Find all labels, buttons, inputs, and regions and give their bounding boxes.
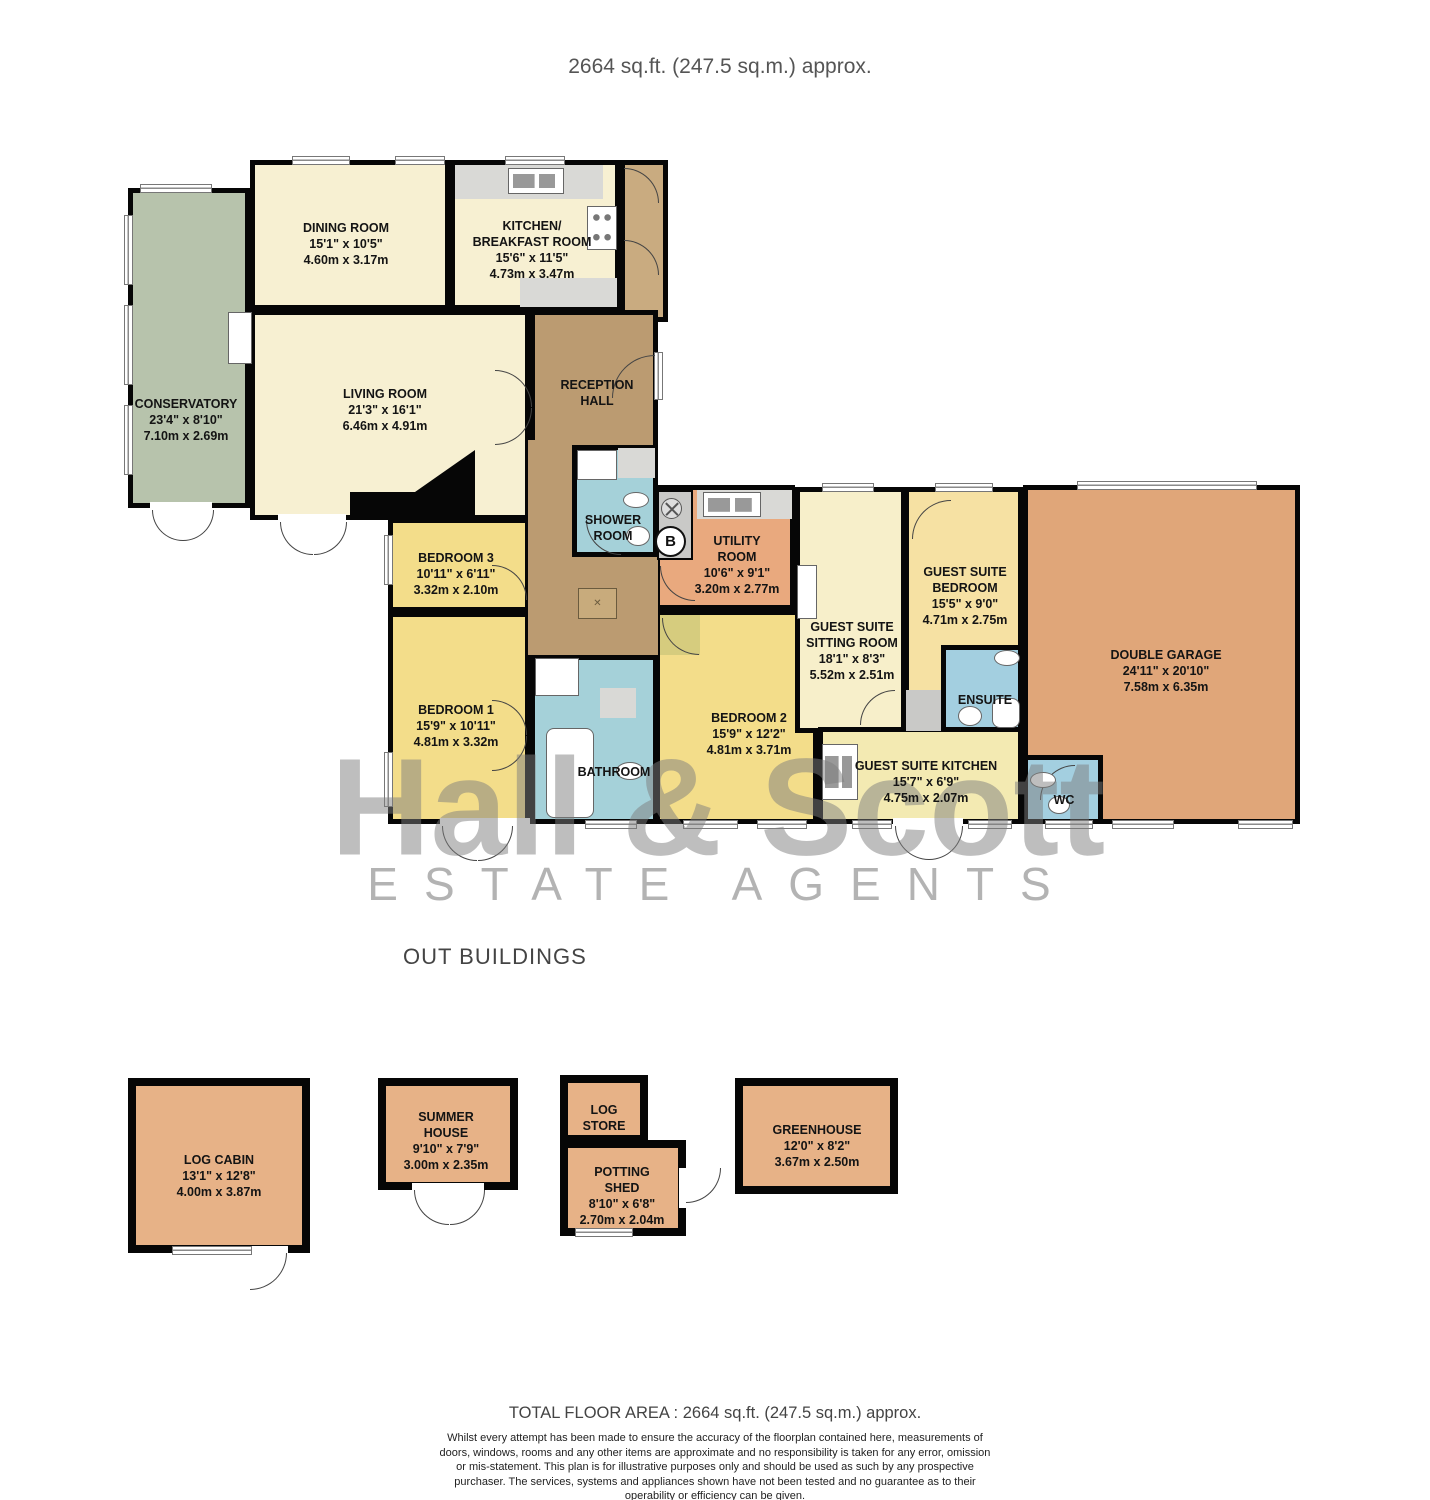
window [124,405,133,475]
window [384,535,393,585]
door-arc [450,1190,485,1225]
room-label-log-cabin: LOG CABIN13'1" x 12'8"4.00m x 3.87m [177,1136,262,1200]
window [575,1228,633,1237]
footer: TOTAL FLOOR AREA : 2664 sq.ft. (247.5 sq… [435,1404,995,1500]
window [124,215,133,285]
window [140,184,212,193]
page-title: 2664 sq.ft. (247.5 sq.m.) approx. [568,55,872,79]
total-floor-area: TOTAL FLOOR AREA : 2664 sq.ft. (247.5 sq… [435,1404,995,1423]
disclaimer-text: Whilst every attempt has been made to en… [435,1431,995,1500]
door-arc [686,1168,721,1203]
window [172,1246,252,1255]
window [1112,820,1174,829]
room-label-summer-house: SUMMER HOUSE9'10" x 7'9"3.00m x 2.35m [404,1093,489,1173]
window [1077,481,1257,490]
window [292,156,350,165]
window [822,483,874,492]
room-label-ensuite: ENSUITE [958,676,1012,708]
room-label-shower: SHOWER ROOM [585,496,641,544]
stove-icon [587,206,617,250]
guest-closet [906,690,941,731]
bathroom-vanity [600,688,636,718]
shower-tray-icon [577,450,617,480]
room-label-bedroom2: BEDROOM 215'9" x 12'2"4.81m x 3.71m [707,694,792,758]
kitchen-counter [520,278,617,307]
room-label-conservatory: CONSERVATORY23'4" x 8'10"7.10m x 2.69m [135,380,238,444]
room-label-potting-shed: POTTING SHED8'10" x 6'8"2.70m x 2.04m [580,1148,665,1228]
room-label-wc: WC [1054,776,1075,808]
room-label-utility: UTILITY ROOM10'6" x 9'1"3.20m x 2.77m [695,517,780,597]
room-label-bedroom3: BEDROOM 310'11" x 6'11"3.32m x 2.10m [414,534,499,598]
bathroom-sink-icon [535,658,579,696]
internal-window [228,312,252,364]
room-label-living: LIVING ROOM21'3" x 16'1"6.46m x 4.91m [343,370,428,434]
room-label-guest-kitchen: GUEST SUITE KITCHEN15'7" x 6'9"4.75m x 2… [855,742,997,806]
door-arc [183,510,214,541]
room-label-bathroom: BATHROOM [578,748,651,780]
door-arc [280,522,313,555]
window [935,483,993,492]
room-label-kitchen: KITCHEN/ BREAKFAST ROOM15'6" x 11'5"4.73… [473,202,592,282]
shower-closet [618,448,655,478]
room-label-guest-bedroom: GUEST SUITE BEDROOM15'5" x 9'0"4.71m x 2… [923,548,1008,628]
toilet-icon [994,650,1020,666]
boiler-indicator: B [655,526,686,557]
door-arc [152,510,183,541]
basin-icon [958,706,982,726]
room-label-guest-sitting: GUEST SUITE SITTING ROOM18'1" x 8'3"5.52… [806,603,898,683]
room-label-reception: RECEPTION HALL [561,361,634,409]
room-label-log-store: LOG STORE [583,1086,626,1134]
front-door-sidelight [654,352,663,400]
room-label-bedroom1: BEDROOM 115'9" x 10'11"4.81m x 3.32m [414,686,499,750]
loft-hatch-icon: ✕ [578,588,617,619]
floor-plan: 2664 sq.ft. (247.5 sq.m.) approx. B ✕ [0,0,1430,1500]
kitchen-sink-icon [508,168,564,194]
room-label-dining: DINING ROOM15'1" x 10'5"4.60m x 3.17m [303,204,389,268]
room-label-garage: DOUBLE GARAGE24'11" x 20'10"7.58m x 6.35… [1110,631,1221,695]
watermark-tagline: ESTATE AGENTS [367,857,1076,911]
door-arc [250,1253,287,1290]
window [1238,820,1293,829]
room-label-greenhouse: GREENHOUSE12'0" x 8'2"3.67m x 2.50m [773,1106,862,1170]
washing-machine-icon [661,498,682,519]
window [395,156,445,165]
section-label-out-buildings: OUT BUILDINGS [403,944,587,970]
window [124,305,133,385]
door-arc [414,1190,449,1225]
utility-sink-icon [703,492,761,517]
hallway-corridor [528,440,572,655]
window [505,156,565,165]
door-arc [314,522,347,555]
